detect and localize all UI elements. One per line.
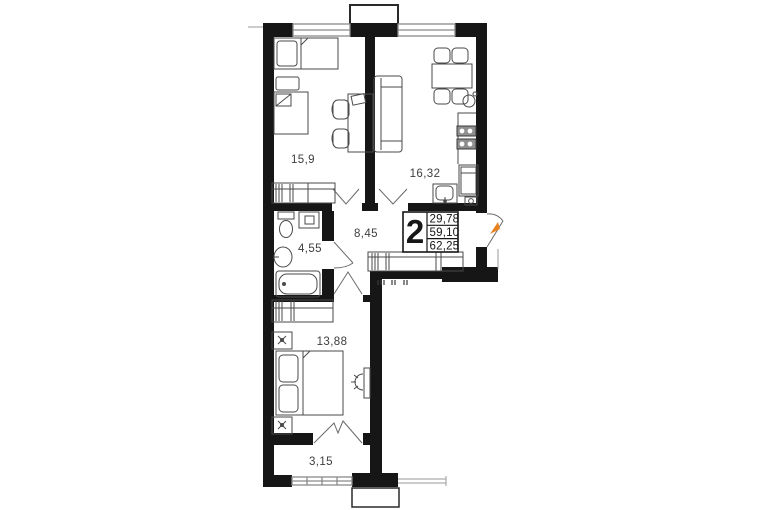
furniture-bedroom-bottom [272,300,370,434]
room-label-bathroom: 4,55 [298,243,322,255]
chair-icon [332,129,349,148]
wall-bedroom-right [370,271,382,480]
bed-icon [274,38,338,69]
chair-icon [434,89,450,104]
wall-balcony-bottom-left [263,475,292,487]
nightstand-icon [276,77,299,90]
bathtub-icon [276,271,320,297]
area-value-living: 29,78 [430,214,460,226]
wall-balcony-bottom-right [352,473,398,487]
window-bedroom-top [293,24,350,36]
wall-top-left-pillar [263,23,293,37]
window-balcony [292,477,352,485]
wall-top-center [350,23,398,37]
kitchen-sink-icon [433,184,457,203]
wall-entry-bottom-right [442,267,498,282]
door-bedroom-bottom-opening [334,272,362,294]
area-value-total: 62,25 [430,240,460,252]
dresser-icon [274,92,308,134]
furniture-bedroom-top [272,38,373,203]
area-badge: 2 29,78 59,10 62,25 [403,212,459,252]
room-label-bedroom-top: 15,9 [291,154,315,166]
door-entrance [487,214,503,247]
wardrobe-icon [272,183,335,203]
door-kitchen-opening [379,189,407,204]
washbasin-icon [274,247,292,267]
entrance-marker-icon [490,222,500,234]
room-label-balcony: 3,15 [309,456,333,468]
room-label-kitchen-living: 16,32 [410,168,441,180]
stove-icon [457,126,476,149]
entry-wall-ticks [378,280,407,285]
wall-room1-bottom [263,203,332,211]
nightstand-lamp-icon [272,417,292,434]
nightstand-lamp-icon [272,332,292,349]
wall-balcony-divider-right [363,433,382,445]
room-label-bedroom-bottom: 13,88 [317,336,348,348]
tv-icon [351,368,370,398]
round-sink-icon [463,92,477,107]
washing-machine-icon [299,212,319,228]
wall-bedroom-top [263,295,333,302]
toilet-icon [278,212,294,238]
furniture-kitchen-living [374,48,478,205]
rooms-count-label: 2 [406,213,424,250]
wardrobe-icon [272,300,333,322]
window-kitchen [398,24,455,36]
door-bathroom [334,242,353,268]
double-bed-icon [276,351,343,415]
dining-table-icon [432,64,472,88]
area-value-main: 59,10 [430,227,460,239]
top-shaft-box [350,5,398,24]
wall-bedroom-top-stub [363,295,372,302]
bottom-shaft-box [352,488,399,507]
chair-icon [452,48,468,63]
room-label-hallway: 8,45 [354,228,378,240]
chair-icon [434,48,450,63]
door-bedroom-top-opening [333,189,359,204]
floor-plan-drawing: 2 29,78 59,10 62,25 15,9 16,32 8,45 4,55… [0,0,770,510]
floor-plan: 2 29,78 59,10 62,25 15,9 16,32 8,45 4,55… [0,0,770,510]
wall-kitchen-bottom [408,203,487,211]
wall-bathroom-right-upper [322,211,334,241]
wall-balcony-divider-left [263,433,313,445]
door-balcony [314,421,362,443]
chair-icon [332,100,349,119]
fridge-icon [459,165,478,196]
sofa-icon [374,76,402,152]
